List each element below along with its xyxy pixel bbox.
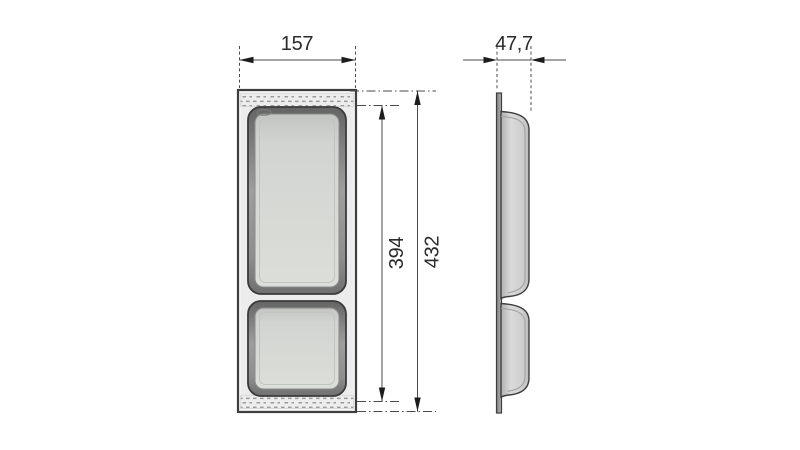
dim-depth-arrow-left bbox=[484, 57, 498, 63]
side-profile-view bbox=[497, 93, 530, 413]
dim-inner-height-label: 394 bbox=[386, 237, 408, 270]
dim-depth-arrow-right bbox=[531, 57, 545, 63]
dim-width-label: 157 bbox=[281, 33, 314, 55]
dim-width: 157 bbox=[240, 33, 356, 88]
drawing-canvas: 157 47,7 394 432 bbox=[0, 0, 800, 450]
dim-depth: 47,7 bbox=[463, 33, 566, 113]
compartment-bottom-floor bbox=[255, 308, 339, 389]
texture-band-bottom bbox=[241, 396, 354, 409]
dim-overall-height-label: 432 bbox=[422, 236, 444, 269]
technical-drawing: 157 47,7 394 432 bbox=[0, 0, 800, 450]
compartment-top-floor bbox=[255, 114, 339, 287]
dim-depth-label: 47,7 bbox=[495, 33, 533, 55]
compartment-bottom bbox=[248, 301, 346, 396]
dim-overall-height-arrow-top bbox=[414, 91, 420, 105]
texture-band-top bbox=[241, 94, 354, 107]
front-view bbox=[238, 90, 356, 412]
dim-width-arrow-right bbox=[342, 57, 356, 63]
dim-inner-height-arrow-top bbox=[379, 106, 385, 120]
dim-width-arrow-left bbox=[240, 57, 254, 63]
compartment-top bbox=[248, 107, 346, 294]
dim-inner-height-arrow-bottom bbox=[379, 388, 385, 402]
dim-overall-height-arrow-bottom bbox=[414, 398, 420, 412]
dim-inner-height: 394 bbox=[357, 106, 408, 402]
